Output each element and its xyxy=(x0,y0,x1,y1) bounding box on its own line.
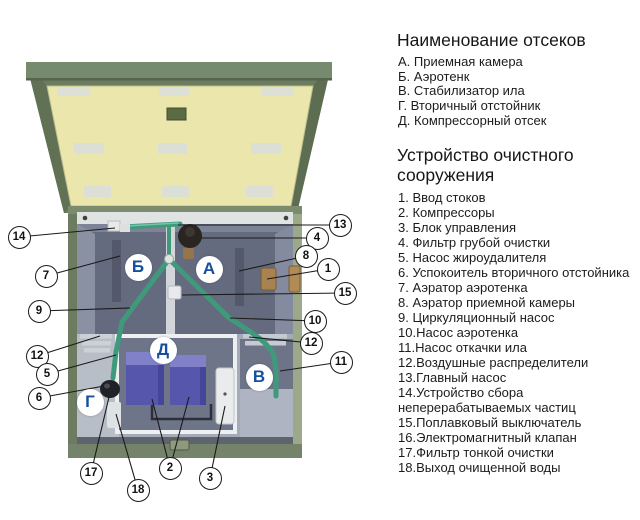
compartments-list: А. Приемная камераБ. АэротенкВ. Стабилиз… xyxy=(398,55,639,129)
device-legend-item: 6. Успокоитель вторичного отстойника xyxy=(398,265,639,280)
base-tab xyxy=(170,440,189,450)
compressor-2 xyxy=(170,355,206,405)
device-title: Устройство очистного сооружения xyxy=(397,145,639,185)
device-legend-item: 3. Блок управления xyxy=(398,220,639,235)
compartment-badge-Б: Б xyxy=(125,254,152,281)
float-switch xyxy=(168,286,181,299)
device-legend-item: 5. Насос жироудалителя xyxy=(398,250,639,265)
callout-10: 10 xyxy=(304,310,327,333)
device-list: 1. Ввод стоков2. Компрессоры3. Блок упра… xyxy=(398,190,639,475)
compartment-badge-Д: Д xyxy=(150,337,177,364)
callout-1: 1 xyxy=(317,258,340,281)
hinge-right xyxy=(284,216,289,221)
callout-17: 17 xyxy=(80,462,103,485)
collector-fitting xyxy=(108,221,120,231)
callout-3: 3 xyxy=(199,467,222,490)
device-legend-item: 7. Аэратор аэротенка xyxy=(398,280,639,295)
aerator-aerotank xyxy=(112,240,121,302)
compartment-legend-item: Д. Компрессорный отсек xyxy=(398,114,639,129)
device-legend-item: 15.Поплавковый выключатель xyxy=(398,415,639,430)
compartment-legend-item: А. Приемная камера xyxy=(398,55,639,70)
callout-18: 18 xyxy=(127,479,150,502)
compartment-badge-В: В xyxy=(246,364,273,391)
callout-7: 7 xyxy=(35,265,58,288)
coarse-filter xyxy=(183,248,194,259)
device-legend-item: 17.Фильтр тонкой очистки xyxy=(398,445,639,460)
compartment-legend-item: Г. Вторичный отстойник xyxy=(398,99,639,114)
device-legend-item: 1. Ввод стоков xyxy=(398,190,639,205)
compartment-badge-Г: Г xyxy=(77,389,104,416)
device-legend-item: 13.Главный насос xyxy=(398,370,639,385)
compartment-badge-А: А xyxy=(196,256,223,283)
device-legend-item: 16.Электромагнитный клапан xyxy=(398,430,639,445)
pipe-junction xyxy=(165,255,174,264)
callout-8: 8 xyxy=(295,245,318,268)
device-legend-item: 4. Фильтр грубой очистки xyxy=(398,235,639,250)
compartments-title: Наименование отсеков xyxy=(397,30,639,50)
callout-2: 2 xyxy=(159,457,182,480)
callout-13: 13 xyxy=(329,214,352,237)
callout-6: 6 xyxy=(28,387,51,410)
device-legend-item: 11.Насос откачки ила xyxy=(398,340,639,355)
aerator-inlet-chamber xyxy=(235,248,244,306)
callout-15: 15 xyxy=(334,282,357,305)
settler-pump xyxy=(100,380,120,398)
hinge-left xyxy=(83,216,88,221)
lid-top-bar xyxy=(26,62,332,80)
open-lid xyxy=(26,62,332,213)
callout-14: 14 xyxy=(8,226,31,249)
device-legend-item: 14.Устройство сбора неперерабатываемых ч… xyxy=(398,385,639,415)
callout-11: 11 xyxy=(330,351,353,374)
diagram-stage: БАДВГ 147912561348115101211171823 Наимен… xyxy=(0,0,640,520)
callout-9: 9 xyxy=(28,300,51,323)
device-legend-item: 8. Аэратор приемной камеры xyxy=(398,295,639,310)
control-unit xyxy=(216,368,234,424)
device-legend-item: 2. Компрессоры xyxy=(398,205,639,220)
callout-12: 12 xyxy=(300,332,323,355)
device-legend-item: 18.Выход очищенной воды xyxy=(398,460,639,475)
device-legend-item: 9. Циркуляционный насос xyxy=(398,310,639,325)
compartment-legend-item: Б. Аэротенк xyxy=(398,70,639,85)
device-legend-item: 12.Воздушные распределители xyxy=(398,355,639,370)
device-legend-item: 10.Насос аэротенка xyxy=(398,325,639,340)
legend-panel: Наименование отсеков А. Приемная камераБ… xyxy=(397,30,639,475)
lid-vent xyxy=(167,108,186,120)
compartment-legend-item: В. Стабилизатор ила xyxy=(398,84,639,99)
callout-5: 5 xyxy=(36,363,59,386)
